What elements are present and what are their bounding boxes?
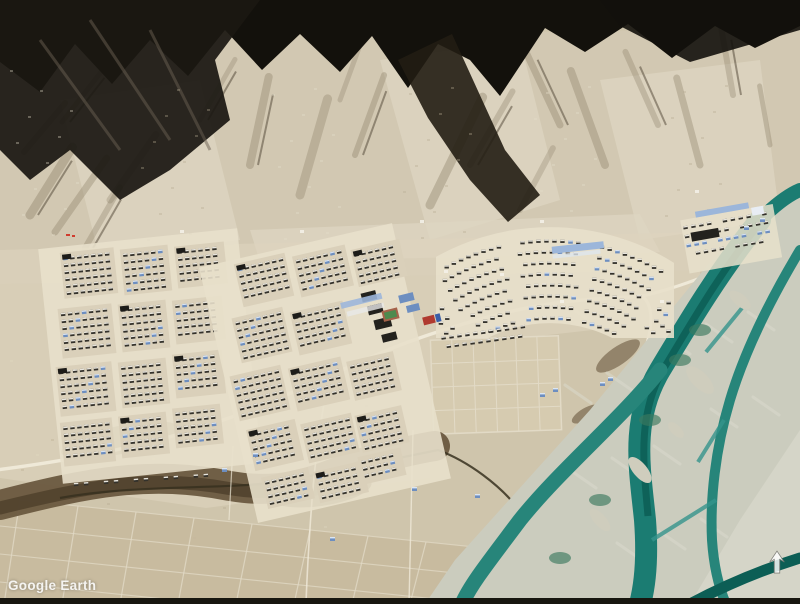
red-marking: [66, 234, 70, 236]
housing-block: [60, 417, 116, 466]
north-arrow-icon[interactable]: [766, 548, 788, 578]
satellite-imagery: [0, 0, 800, 604]
housing-block: [120, 245, 173, 296]
bottom-letterbox-bar: [0, 598, 800, 604]
housing-block: [60, 247, 119, 298]
housing-block: [56, 361, 117, 417]
housing-block: [172, 350, 226, 399]
satellite-viewport: Google Earth: [0, 0, 800, 604]
field-grid: [430, 336, 561, 434]
housing-block: [58, 303, 117, 358]
housing-block: [118, 358, 171, 409]
housing-block: [172, 404, 224, 449]
housing-block: [118, 300, 171, 353]
google-earth-watermark: Google Earth: [8, 578, 96, 593]
housing-block: [118, 412, 170, 459]
